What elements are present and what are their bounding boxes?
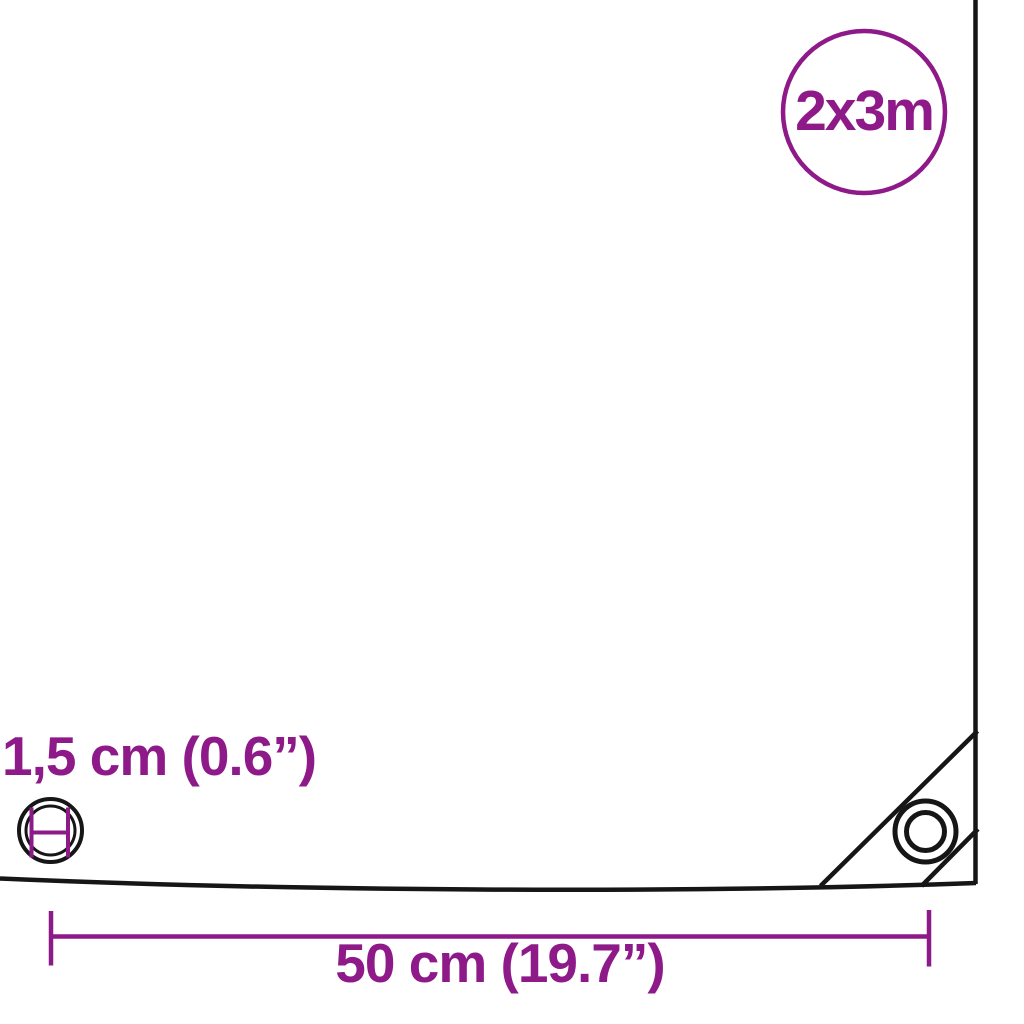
tarpaulin-dimension-diagram: 2x3m 1,5 cm (0.6”) 50 cm (19.7”) bbox=[0, 0, 1024, 1024]
width-dimension-label: 50 cm (19.7”) bbox=[335, 935, 664, 993]
eyelet-diameter-label: 1,5 cm (0.6”) bbox=[2, 728, 316, 786]
corner-eyelet-icon bbox=[895, 801, 956, 862]
tarp-bottom-edge bbox=[0, 879, 976, 890]
diagram-shapes bbox=[0, 0, 1024, 1024]
corner-strap-line bbox=[922, 829, 979, 886]
corner-eyelet-inner-ring bbox=[907, 813, 945, 851]
corner-fold-line bbox=[821, 731, 978, 886]
size-badge-label: 2x3m bbox=[795, 82, 933, 142]
